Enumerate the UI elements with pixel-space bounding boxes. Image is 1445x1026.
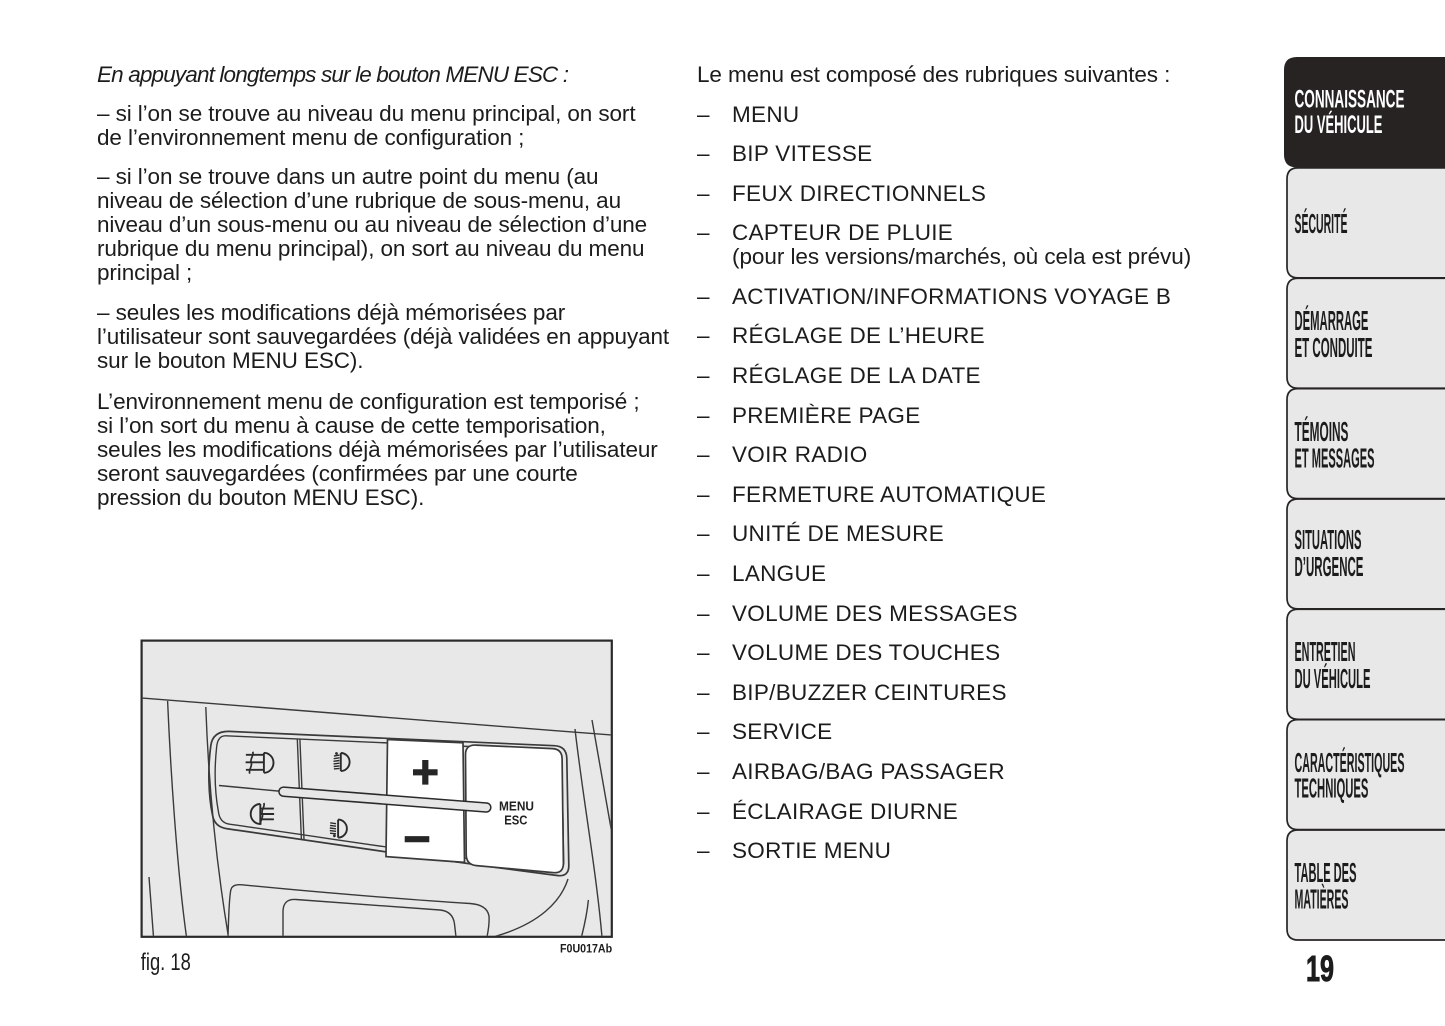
svg-text:D’URGENCE: D’URGENCE	[1295, 551, 1364, 582]
svg-text:F0U017Ab: F0U017Ab	[560, 943, 612, 956]
svg-text:MENU: MENU	[499, 799, 534, 813]
svg-text:TECHNIQUES: TECHNIQUES	[1295, 773, 1369, 804]
svg-text:ESC: ESC	[504, 813, 528, 828]
svg-text:CONNAISSANCE: CONNAISSANCE	[1295, 87, 1405, 114]
svg-text:19: 19	[1306, 950, 1334, 989]
svg-text:ET MESSAGES: ET MESSAGES	[1295, 443, 1375, 475]
svg-text:ET CONDUITE: ET CONDUITE	[1295, 332, 1373, 363]
svg-text:fig. 18: fig. 18	[141, 949, 191, 976]
svg-text:MATIÈRES: MATIÈRES	[1295, 882, 1349, 915]
svg-text:SÉCURITÉ: SÉCURITÉ	[1295, 209, 1348, 239]
svg-text:DU VÉHICULE: DU VÉHICULE	[1295, 110, 1383, 139]
svg-text:DU VÉHICULE: DU VÉHICULE	[1295, 662, 1371, 695]
